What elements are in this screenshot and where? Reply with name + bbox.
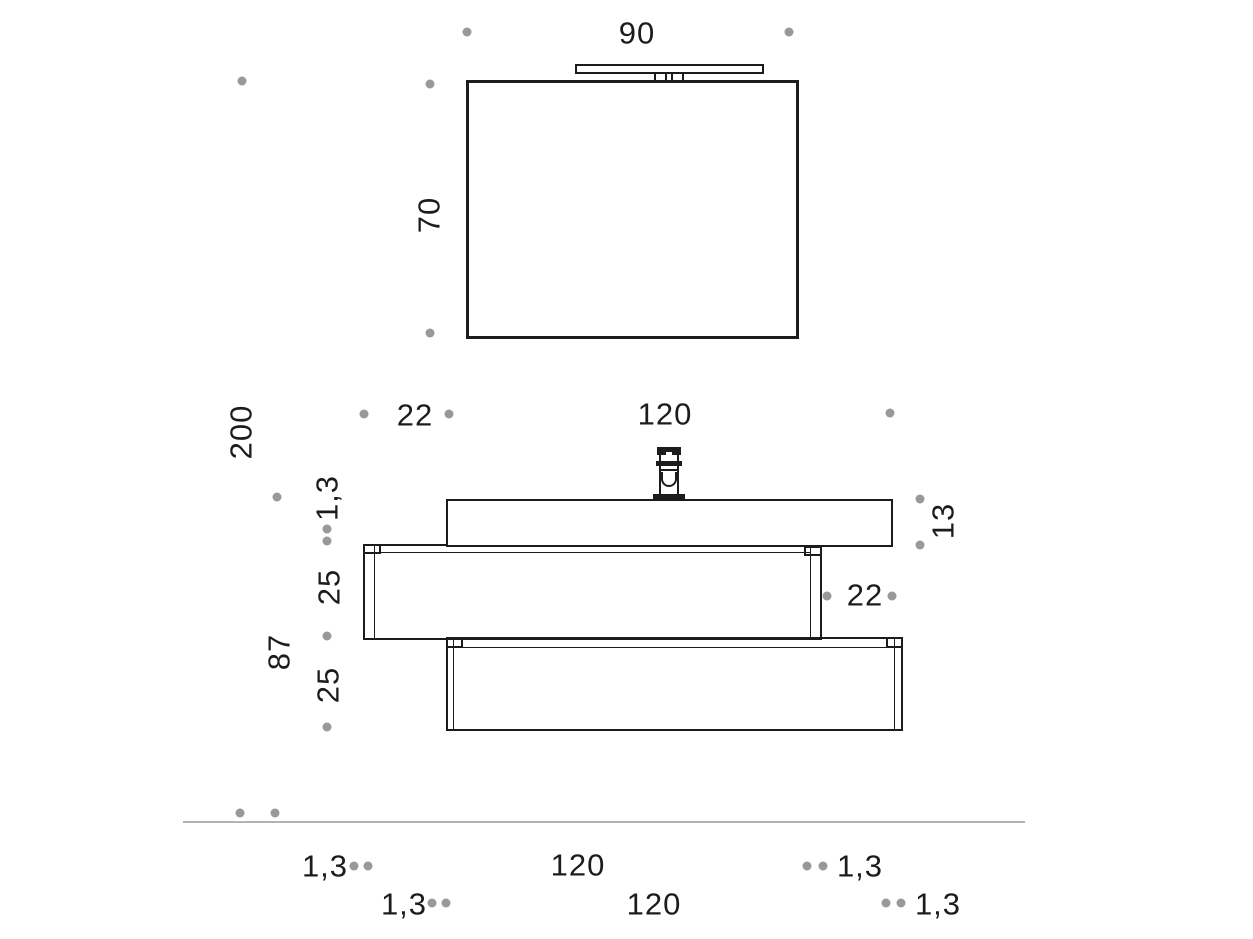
- dim-base-unit-height: 87: [264, 634, 295, 670]
- dimension-dot: [823, 592, 832, 601]
- upper-unit-top-rail: [375, 552, 811, 553]
- dimension-dot: [785, 28, 794, 37]
- dimension-dot: [426, 329, 435, 338]
- upper-unit-left-panel: [374, 545, 375, 639]
- dim-upper-panel-right: 1,3: [837, 851, 883, 882]
- technical-drawing-canvas: 90 70 200 22 120 1,3 25 87 25 13 22 1,3 …: [0, 0, 1253, 939]
- floor-line: [183, 821, 1025, 823]
- upper-unit-outline: [363, 544, 822, 640]
- upper-unit-right-panel: [810, 545, 811, 639]
- dim-basin-width: 120: [638, 399, 693, 430]
- dim-lower-panel-right: 1,3: [915, 889, 961, 920]
- washbasin-top: [446, 499, 893, 547]
- dimension-dot: [445, 410, 454, 419]
- dimension-dot: [819, 862, 828, 871]
- dimension-dot: [323, 537, 332, 546]
- dimension-dot: [428, 899, 437, 908]
- dimension-dot: [897, 899, 906, 908]
- dimension-dot: [350, 862, 359, 871]
- dim-lower-panel-left: 1,3: [381, 889, 427, 920]
- upper-unit-left-lip: [363, 544, 381, 554]
- dimension-dot: [463, 28, 472, 37]
- dim-upper-drawer-height: 25: [314, 569, 345, 605]
- dimension-dot: [323, 525, 332, 534]
- lower-unit-left-lip: [446, 637, 463, 648]
- dimension-dot: [238, 77, 247, 86]
- dim-side-offset: 22: [847, 580, 883, 611]
- dim-upper-panel-left: 1,3: [302, 851, 348, 882]
- dim-mirror-gap: 22: [397, 400, 433, 431]
- dimension-dot: [360, 410, 369, 419]
- dimension-dot: [364, 862, 373, 871]
- dim-upper-unit-width: 120: [551, 850, 606, 881]
- dimension-dot: [323, 632, 332, 641]
- dim-worktop-thickness: 1,3: [312, 475, 343, 521]
- dimension-dot: [236, 809, 245, 818]
- faucet-cap-notch: [666, 452, 672, 455]
- dimension-dot: [803, 862, 812, 871]
- lower-unit-top-rail: [458, 647, 890, 648]
- dim-overall-height: 200: [226, 405, 257, 460]
- dimension-dot: [271, 809, 280, 818]
- dimension-dot: [426, 80, 435, 89]
- lower-unit-left-panel: [453, 638, 454, 730]
- lower-unit-outline: [446, 637, 903, 731]
- dimension-dot: [888, 592, 897, 601]
- dim-lower-unit-width: 120: [627, 889, 682, 920]
- faucet-band: [656, 461, 682, 466]
- dimension-dot: [323, 723, 332, 732]
- mirror: [466, 80, 799, 339]
- lower-unit-right-panel: [894, 638, 895, 730]
- faucet-line: [660, 469, 678, 471]
- dimension-dot: [442, 899, 451, 908]
- lower-unit-right-lip: [886, 637, 903, 648]
- dim-lower-drawer-height: 25: [313, 667, 344, 703]
- upper-unit-right-lip: [804, 546, 822, 556]
- dim-basin-height: 13: [928, 503, 959, 539]
- dimension-dot: [916, 541, 925, 550]
- dimension-dot: [882, 899, 891, 908]
- dimension-dot: [273, 493, 282, 502]
- dimension-dot: [886, 409, 895, 418]
- dimension-dot: [916, 495, 925, 504]
- dim-mirror-width: 90: [619, 18, 655, 49]
- light-bar: [575, 64, 764, 74]
- dim-mirror-height: 70: [414, 197, 445, 233]
